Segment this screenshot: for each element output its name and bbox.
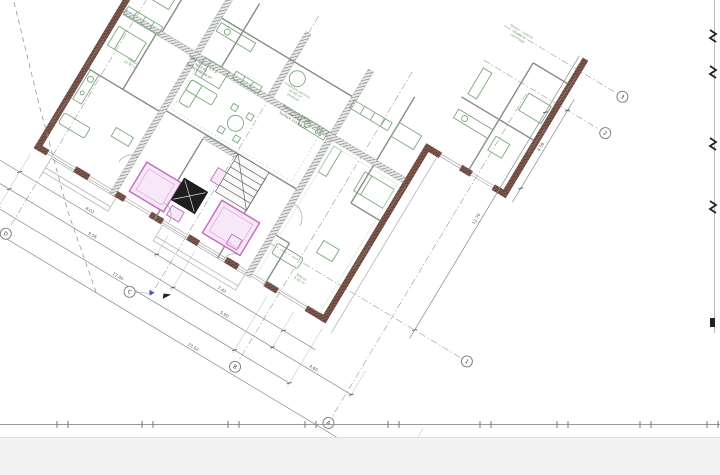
dimension-label: 5.80 xyxy=(219,310,230,319)
break-mark-icon xyxy=(710,66,716,78)
bed-icon xyxy=(107,26,146,61)
table-icon xyxy=(488,136,510,158)
sheet-ruler xyxy=(0,421,720,428)
dimension-label: 12.70 xyxy=(471,212,482,225)
site-boundary-line xyxy=(14,2,96,292)
grid-axis-lines xyxy=(10,0,619,461)
sofa-icon xyxy=(178,80,217,118)
grid-bubble-A: A xyxy=(321,415,336,430)
room-labels: Appartement 3.5 p. lot 2.01 Surface 88.5… xyxy=(72,0,533,321)
viewer-footer-band xyxy=(0,438,720,475)
break-mark-icon xyxy=(710,30,716,42)
dining-table-icon xyxy=(217,103,254,143)
kitchen-counter-icon xyxy=(454,109,493,138)
table-icon xyxy=(317,240,340,261)
room-label: Balcon 9.60 m² xyxy=(293,272,309,286)
sofa-icon xyxy=(58,113,90,139)
table-icon xyxy=(391,123,422,150)
grid-bubble-C: C xyxy=(122,284,137,299)
dimension-label: 7.42 xyxy=(217,285,228,294)
break-mark-icon xyxy=(710,201,716,213)
grid-bubble-3: 3 xyxy=(615,89,630,104)
dimension-label: 8.02 xyxy=(85,206,96,215)
dimension-label: 4.60 xyxy=(308,363,319,372)
dimension-ticks xyxy=(0,0,604,475)
drawing-sheet: 8.02 7.42 9.56 5.80 4.60 13.80 23.92 12.… xyxy=(0,0,720,475)
floor-plan: 8.02 7.42 9.56 5.80 4.60 13.80 23.92 12.… xyxy=(0,0,637,475)
grid-bubble-B: B xyxy=(227,359,242,374)
dimension-chains: 8.02 7.42 9.56 5.80 4.60 13.80 23.92 12.… xyxy=(0,0,631,475)
edge-mark xyxy=(710,318,715,327)
wardrobe-icon xyxy=(468,68,492,99)
grid-bubble-2: 2 xyxy=(598,126,613,141)
door-arcs xyxy=(104,115,308,284)
sheet-edge-right xyxy=(710,0,716,333)
desk-icon xyxy=(111,127,133,146)
break-mark-icon xyxy=(710,138,716,150)
grid-bubble-D: D xyxy=(0,226,13,241)
north-arrow-marker xyxy=(161,291,171,301)
floor-plan-canvas: 8.02 7.42 9.56 5.80 4.60 13.80 23.92 12.… xyxy=(0,0,720,475)
bed-icon xyxy=(141,0,180,10)
room-label: Séjour - cuisine 35.20 m² carrelage xyxy=(505,23,534,47)
bed-icon xyxy=(354,172,394,208)
grid-bubble-1: 1 xyxy=(459,354,474,369)
dimension-label: 9.56 xyxy=(87,231,98,240)
